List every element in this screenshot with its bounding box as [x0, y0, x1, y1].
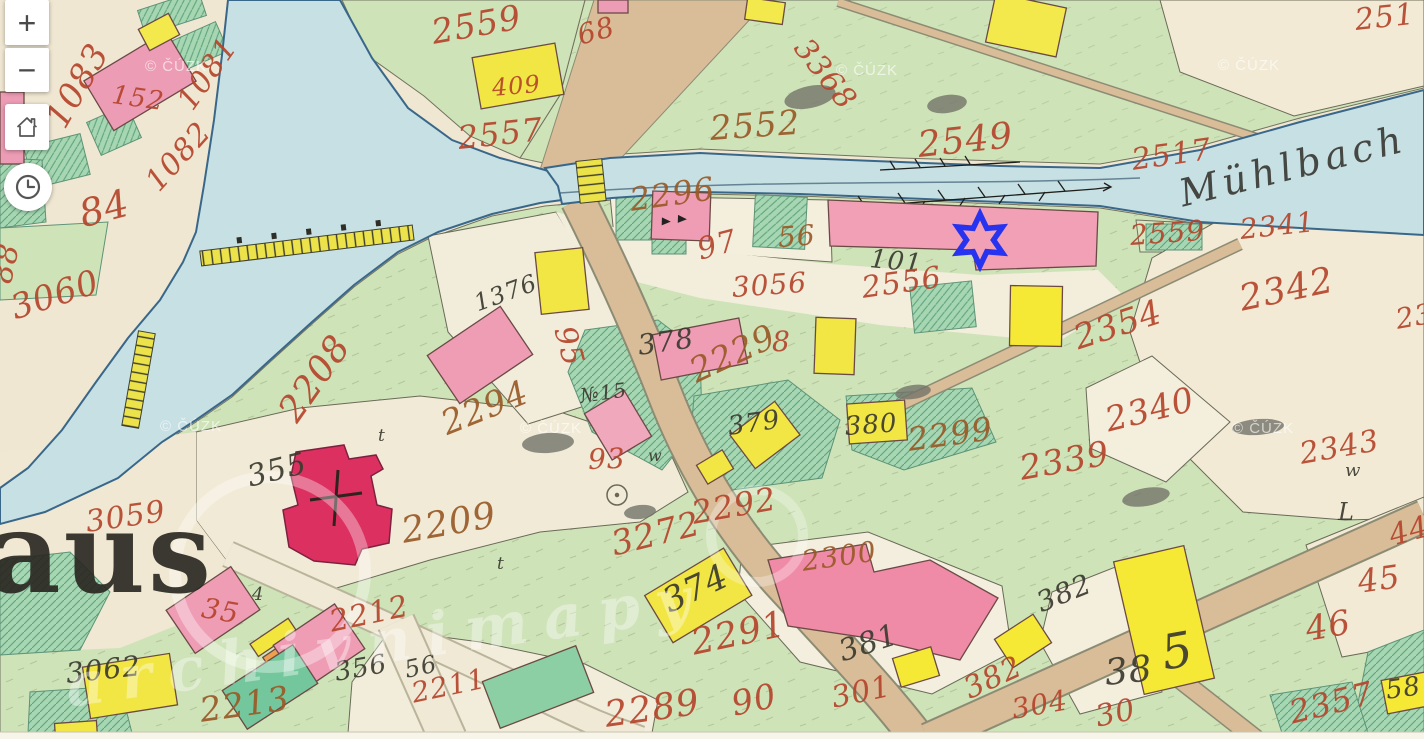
home-icon — [14, 114, 40, 140]
bridge-stream — [576, 159, 606, 203]
minus-icon: − — [18, 54, 37, 86]
clock-icon — [13, 172, 43, 202]
home-button[interactable] — [5, 104, 49, 150]
plus-icon: + — [18, 7, 37, 39]
sheet-edge — [0, 732, 1424, 739]
map-canvas[interactable]: 1083152108110828488306030592559684092557… — [0, 0, 1424, 739]
cadastral-map — [0, 0, 1424, 739]
place-name-fragment: aus — [0, 498, 214, 610]
zoom-out-button[interactable]: − — [5, 48, 49, 92]
history-button[interactable] — [4, 163, 52, 211]
map-viewer: 1083152108110828488306030592559684092557… — [0, 0, 1424, 739]
zoom-in-button[interactable]: + — [5, 0, 49, 45]
